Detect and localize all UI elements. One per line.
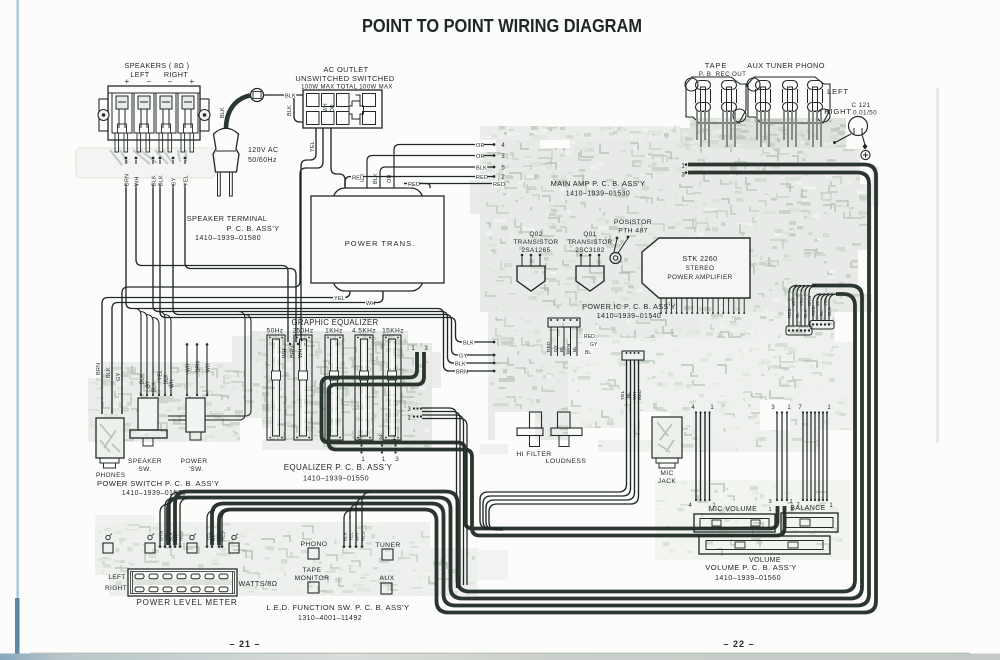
svg-text:BRN: BRN <box>807 296 812 306</box>
svg-text:POINT TO POINT WIRING DIAGRAM: POINT TO POINT WIRING DIAGRAM <box>362 15 642 36</box>
svg-text:BLK: BLK <box>827 306 832 316</box>
svg-text:RIGHT: RIGHT <box>105 585 127 592</box>
svg-text:BLK: BLK <box>220 107 226 118</box>
svg-text:1410–1939–01580: 1410–1939–01580 <box>195 233 261 242</box>
svg-text:RED: RED <box>584 334 595 340</box>
svg-text:SPEAKERS ( 8Ω ): SPEAKERS ( 8Ω ) <box>125 61 190 70</box>
svg-text:1410–1939–01550: 1410–1939–01550 <box>303 474 369 483</box>
svg-text:2SC3182: 2SC3182 <box>575 247 604 254</box>
svg-text:15KHz: 15KHz <box>382 328 404 335</box>
svg-text:EQUALIZER P. C. B. ASS’Y: EQUALIZER P. C. B. ASS’Y <box>284 463 393 472</box>
svg-text:WH: WH <box>135 176 141 186</box>
svg-text:YEL: YEL <box>799 297 804 306</box>
svg-text:1410–1939–01560: 1410–1939–01560 <box>715 573 781 582</box>
svg-text:BL: BL <box>795 312 800 318</box>
svg-text:BL: BL <box>819 310 824 316</box>
svg-text:MIC VOLUME: MIC VOLUME <box>709 506 757 513</box>
svg-text:AUX: AUX <box>379 575 394 582</box>
svg-text:BLK: BLK <box>343 531 348 541</box>
svg-text:YEL: YEL <box>334 296 345 302</box>
svg-text:TRANSISTOR: TRANSISTOR <box>567 239 612 246</box>
svg-text:YEL: YEL <box>184 175 190 186</box>
svg-text:TUNER: TUNER <box>375 542 400 549</box>
svg-text:POWER SWITCH P. C. B. ASS’Y: POWER SWITCH P. C. B. ASS’Y <box>97 479 219 488</box>
svg-text:BL: BL <box>572 346 578 352</box>
svg-text:−: − <box>167 77 172 86</box>
svg-text:MAIN AMP P. C. B. ASS’Y: MAIN AMP P. C. B. ASS’Y <box>551 179 646 188</box>
svg-text:BRN: BRN <box>196 361 202 372</box>
svg-text:OR: OR <box>476 143 485 149</box>
svg-text:BALANCE: BALANCE <box>790 505 825 512</box>
svg-text:RIGHT: RIGHT <box>824 107 852 116</box>
svg-text:UNSWITCHED SWITCHED: UNSWITCHED SWITCHED <box>295 74 394 83</box>
svg-text:BRN: BRN <box>125 174 131 186</box>
svg-text:WH: WH <box>186 363 192 372</box>
svg-text:50Hz: 50Hz <box>267 328 284 335</box>
svg-text:YEL: YEL <box>823 297 828 306</box>
svg-text:MIC: MIC <box>660 470 673 477</box>
svg-text:’SW.: ’SW. <box>188 466 203 473</box>
svg-text:SPEAKER TERMINAL: SPEAKER TERMINAL <box>187 214 268 223</box>
svg-text:LEFT: LEFT <box>108 574 125 581</box>
svg-text:WH: WH <box>174 532 180 541</box>
svg-text:JACK: JACK <box>658 478 677 485</box>
svg-text:−: − <box>146 77 151 86</box>
svg-text:RED: RED <box>493 182 505 188</box>
svg-text:YEL: YEL <box>620 390 626 400</box>
svg-text:SPEAKER: SPEAKER <box>128 458 162 465</box>
svg-text:RED: RED <box>352 176 364 182</box>
svg-text:1410–1939–01530: 1410–1939–01530 <box>566 191 630 198</box>
svg-text:POSISTOR: POSISTOR <box>614 219 652 226</box>
svg-text:BLK: BLK <box>287 105 293 116</box>
svg-text:GRAPHIC EQUALIZER: GRAPHIC EQUALIZER <box>292 318 379 327</box>
svg-text:WH: WH <box>366 301 376 307</box>
svg-text:OR: OR <box>476 154 485 160</box>
svg-text:1KHz: 1KHz <box>325 328 343 335</box>
svg-text:GY: GY <box>553 344 559 352</box>
svg-text:WH: WH <box>323 103 329 112</box>
svg-text:LEFT: LEFT <box>827 87 849 96</box>
svg-text:RED: RED <box>546 341 552 352</box>
svg-text:PHONO: PHONO <box>301 541 328 548</box>
svg-text:0.01/50: 0.01/50 <box>853 110 877 117</box>
svg-text:POWER IC P. C. B. ASS’Y: POWER IC P. C. B. ASS’Y <box>582 302 676 311</box>
svg-text:RED: RED <box>811 305 816 316</box>
svg-text:POWER AMPLIFIER: POWER AMPLIFIER <box>667 274 732 281</box>
svg-text:BLK: BLK <box>373 173 379 184</box>
svg-text:RED: RED <box>476 175 488 181</box>
svg-text:WATTS/8Ω: WATTS/8Ω <box>239 579 278 588</box>
svg-text:RED: RED <box>787 307 792 318</box>
svg-text:Q02: Q02 <box>529 231 542 238</box>
svg-text:TRANSISTOR: TRANSISTOR <box>513 239 558 246</box>
svg-text:BLK: BLK <box>152 175 158 186</box>
svg-text:BLK: BLK <box>476 166 487 172</box>
svg-text:POWER: POWER <box>181 458 208 465</box>
svg-text:250Hz: 250Hz <box>292 328 313 335</box>
svg-text:GY: GY <box>459 354 467 360</box>
svg-text:BRN: BRN <box>96 363 102 375</box>
svg-text:BL: BL <box>559 346 565 352</box>
svg-text:4.5KHz: 4.5KHz <box>352 328 376 335</box>
svg-text:– 21 –: – 21 – <box>229 639 260 649</box>
svg-text:PTH 487: PTH 487 <box>618 228 648 235</box>
svg-text:LOUDNESS: LOUDNESS <box>546 458 587 465</box>
svg-text:MONITOR: MONITOR <box>295 575 330 582</box>
svg-text:WH: WH <box>218 532 224 541</box>
svg-text:STK 2260: STK 2260 <box>682 254 717 263</box>
svg-text:AUX TUNER PHONO: AUX TUNER PHONO <box>747 61 825 70</box>
svg-text:P. C. B. ASS’Y: P. C. B. ASS’Y <box>226 224 279 233</box>
svg-text:OR: OR <box>330 104 336 112</box>
svg-text:1410–1939–01570: 1410–1939–01570 <box>122 490 186 497</box>
svg-text:TAPE: TAPE <box>705 61 727 70</box>
svg-text:1410–1939–01540: 1410–1939–01540 <box>597 313 661 320</box>
svg-text:SW.: SW. <box>138 466 151 473</box>
svg-text:YEL: YEL <box>349 532 354 541</box>
svg-text:3: 3 <box>768 499 771 505</box>
svg-text:– 22 –: – 22 – <box>723 639 754 649</box>
svg-text:+: + <box>189 77 194 86</box>
svg-text:2SA1265: 2SA1265 <box>521 247 550 254</box>
svg-text:BRN: BRN <box>290 346 296 358</box>
svg-text:OR: OR <box>387 174 393 183</box>
svg-text:BLK: BLK <box>106 367 112 378</box>
svg-text:L.E.D. FUNCTION SW. P. C. B.: L.E.D. FUNCTION SW. P. C. B. ASS’Y <box>266 603 409 612</box>
svg-text:BLK: BLK <box>159 175 165 186</box>
svg-text:BRN: BRN <box>566 343 572 354</box>
svg-text:POWER TRANS.: POWER TRANS. <box>345 239 416 248</box>
svg-text:WH: WH <box>355 533 360 541</box>
svg-text:BLK: BLK <box>455 362 466 368</box>
svg-text:BLK: BLK <box>463 341 474 347</box>
svg-text:WH: WH <box>206 363 212 372</box>
svg-text:Q01: Q01 <box>583 231 596 238</box>
svg-text:1310–4001–11492: 1310–4001–11492 <box>298 615 362 622</box>
svg-text:AC OUTLET: AC OUTLET <box>323 65 368 74</box>
svg-text:BLK: BLK <box>152 382 158 392</box>
svg-text:+: + <box>124 77 129 86</box>
svg-text:RED: RED <box>408 182 420 188</box>
svg-text:GY: GY <box>172 178 178 186</box>
svg-text:TAPE: TAPE <box>303 567 322 574</box>
svg-text:PHONES: PHONES <box>96 472 125 479</box>
svg-text:GY: GY <box>116 373 122 381</box>
svg-text:BLK: BLK <box>803 308 808 318</box>
svg-text:YEL: YEL <box>310 141 316 152</box>
svg-text:WH: WH <box>815 298 820 306</box>
svg-text:BL: BL <box>211 534 217 541</box>
svg-text:1: 1 <box>768 507 771 513</box>
svg-text:120V AC: 120V AC <box>248 147 278 154</box>
svg-text:C 121: C 121 <box>851 102 870 109</box>
svg-text:STEREO: STEREO <box>686 265 715 272</box>
svg-text:BL: BL <box>626 392 632 398</box>
svg-text:HI FILTER: HI FILTER <box>516 451 551 458</box>
svg-text:GY: GY <box>590 342 598 348</box>
svg-text:WH: WH <box>170 379 176 388</box>
svg-text:POWER LEVEL METER: POWER LEVEL METER <box>137 598 238 607</box>
svg-text:BRN: BRN <box>456 370 468 376</box>
svg-text:50/60Hz: 50/60Hz <box>248 157 277 164</box>
svg-text:RED: RED <box>361 530 366 541</box>
svg-text:BL: BL <box>585 350 591 356</box>
svg-text:WH: WH <box>791 298 796 306</box>
svg-text:VOLUME P. C. B. ASS’Y: VOLUME P. C. B. ASS’Y <box>705 563 796 572</box>
svg-text:RED: RED <box>637 389 643 400</box>
